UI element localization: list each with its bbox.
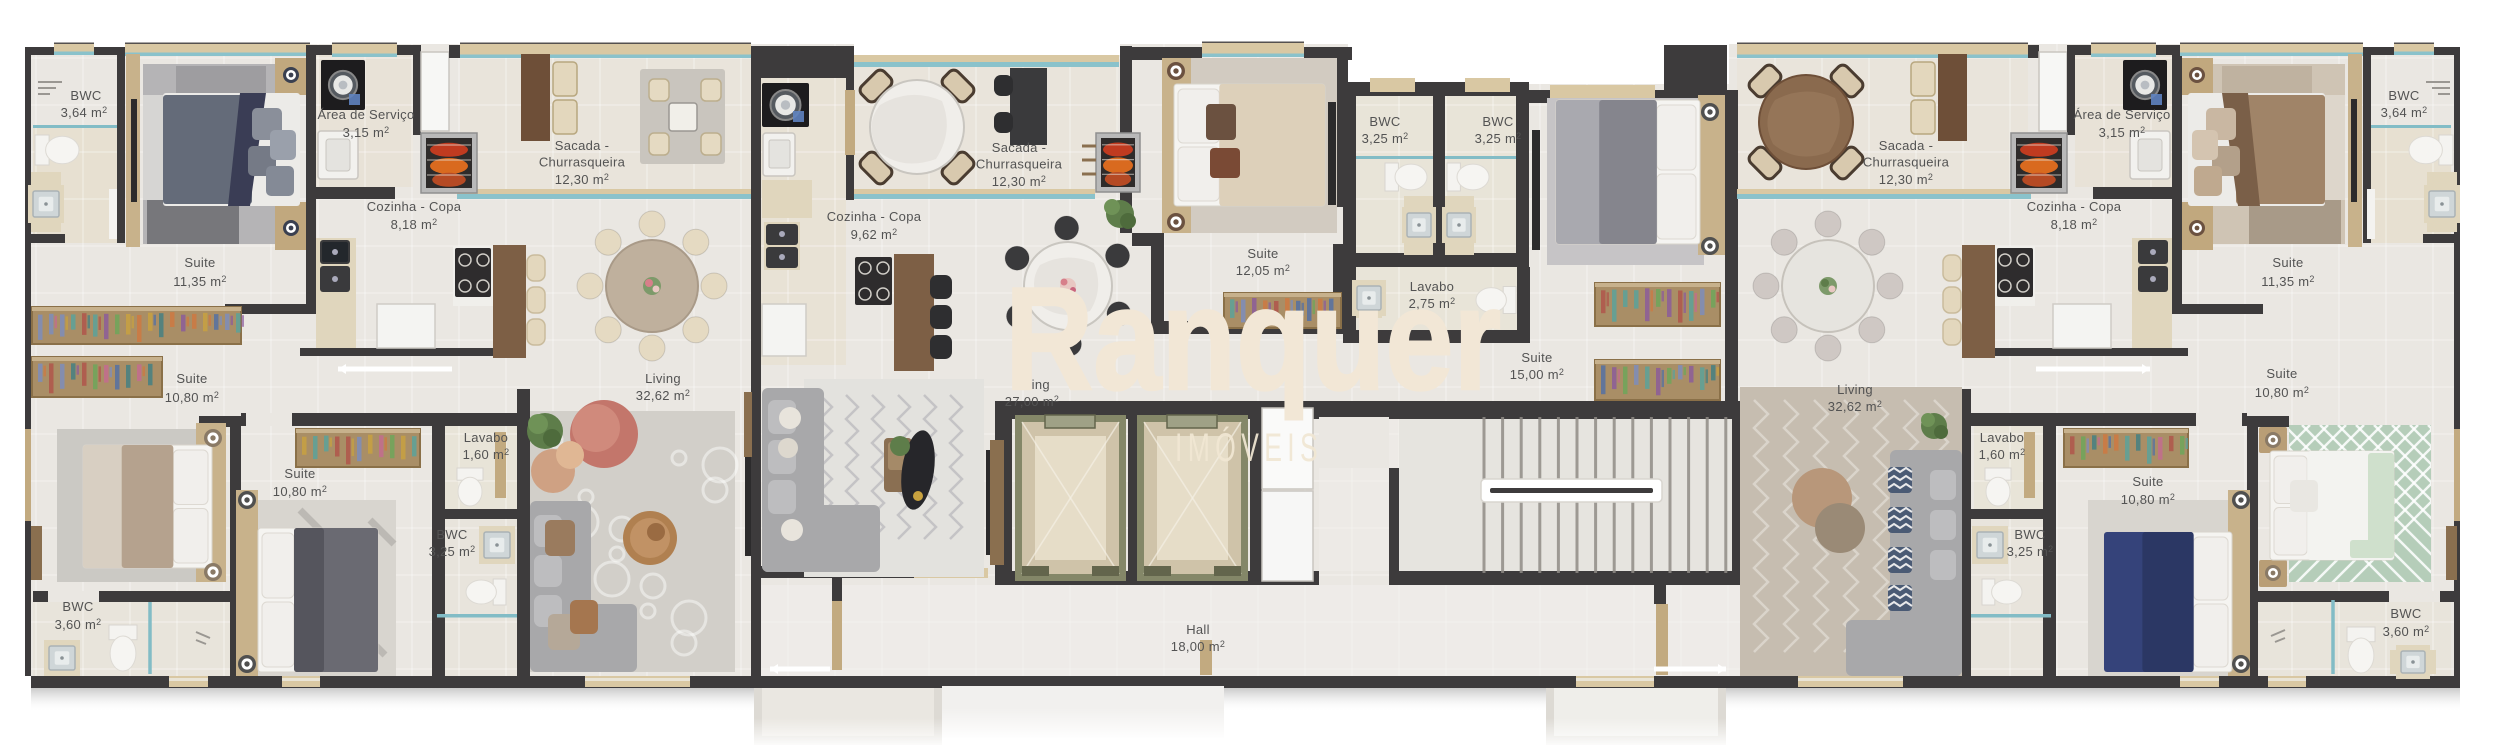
svg-text:3,60 m2: 3,60 m2 xyxy=(55,617,102,632)
svg-text:12,30 m2: 12,30 m2 xyxy=(555,172,609,187)
svg-text:11,35 m2: 11,35 m2 xyxy=(2261,274,2314,289)
svg-text:3,64 m2: 3,64 m2 xyxy=(61,105,108,120)
svg-text:Sacada -: Sacada - xyxy=(992,140,1046,155)
svg-text:Sacada -: Sacada - xyxy=(1879,138,1933,153)
svg-text:15,00 m2: 15,00 m2 xyxy=(1510,367,1564,382)
svg-text:BWC: BWC xyxy=(2388,88,2419,103)
svg-text:Área de Serviço: Área de Serviço xyxy=(318,107,415,122)
svg-text:Suite: Suite xyxy=(2272,255,2303,270)
svg-text:Suite: Suite xyxy=(176,371,207,386)
svg-text:BWC: BWC xyxy=(70,88,101,103)
svg-text:Lavabo: Lavabo xyxy=(464,430,508,445)
svg-text:BWC: BWC xyxy=(436,527,467,542)
svg-text:BWC: BWC xyxy=(2014,527,2045,542)
svg-text:Ranquer: Ranquer xyxy=(1005,257,1501,420)
svg-text:BWC: BWC xyxy=(62,599,93,614)
svg-text:32,62 m2: 32,62 m2 xyxy=(636,388,690,403)
svg-text:11,35 m2: 11,35 m2 xyxy=(173,274,226,289)
svg-text:Suite: Suite xyxy=(1521,350,1552,365)
svg-text:1,60 m2: 1,60 m2 xyxy=(463,447,510,462)
svg-text:Cozinha - Copa: Cozinha - Copa xyxy=(367,199,462,214)
svg-text:Sacada -: Sacada - xyxy=(555,138,609,153)
svg-text:3,64 m2: 3,64 m2 xyxy=(2381,105,2428,120)
svg-text:12,30 m2: 12,30 m2 xyxy=(992,174,1046,189)
svg-text:10,80 m2: 10,80 m2 xyxy=(2255,385,2309,400)
svg-text:Churrasqueira: Churrasqueira xyxy=(539,155,626,170)
svg-text:3,15 m2: 3,15 m2 xyxy=(343,125,390,140)
svg-text:3,25 m2: 3,25 m2 xyxy=(2007,544,2054,559)
svg-text:BWC: BWC xyxy=(1482,114,1513,129)
svg-text:18,00 m2: 18,00 m2 xyxy=(1171,639,1225,654)
svg-text:3,25 m2: 3,25 m2 xyxy=(429,544,476,559)
svg-text:3,25 m2: 3,25 m2 xyxy=(1475,131,1522,146)
svg-text:Cozinha - Copa: Cozinha - Copa xyxy=(827,209,922,224)
svg-text:Lavabo: Lavabo xyxy=(1980,430,2024,445)
svg-text:Área de Serviço: Área de Serviço xyxy=(2074,107,2171,122)
svg-text:1,60 m2: 1,60 m2 xyxy=(1979,447,2026,462)
svg-text:Suite: Suite xyxy=(184,255,215,270)
svg-text:Churrasqueira: Churrasqueira xyxy=(976,157,1063,172)
svg-text:Suite: Suite xyxy=(2132,474,2163,489)
svg-text:10,80 m2: 10,80 m2 xyxy=(2121,492,2175,507)
svg-text:Hall: Hall xyxy=(1186,622,1210,637)
svg-text:BWC: BWC xyxy=(1369,114,1400,129)
svg-text:Suite: Suite xyxy=(284,466,315,481)
svg-text:10,80 m2: 10,80 m2 xyxy=(273,484,327,499)
svg-text:Suite: Suite xyxy=(2266,366,2297,381)
svg-text:3,25 m2: 3,25 m2 xyxy=(1362,131,1409,146)
svg-text:3,15 m2: 3,15 m2 xyxy=(2099,125,2146,140)
svg-text:Living: Living xyxy=(645,371,681,386)
svg-text:BWC: BWC xyxy=(2390,606,2421,621)
svg-text:12,30 m2: 12,30 m2 xyxy=(1879,172,1933,187)
svg-text:9,62 m2: 9,62 m2 xyxy=(851,227,898,242)
svg-text:32,62 m2: 32,62 m2 xyxy=(1828,399,1882,414)
svg-text:IMÓVEIS: IMÓVEIS xyxy=(1175,425,1323,470)
svg-text:8,18 m2: 8,18 m2 xyxy=(391,217,438,232)
svg-text:10,80 m2: 10,80 m2 xyxy=(165,390,219,405)
svg-text:Living: Living xyxy=(1837,382,1873,397)
svg-text:Cozinha - Copa: Cozinha - Copa xyxy=(2027,199,2122,214)
svg-text:8,18 m2: 8,18 m2 xyxy=(2051,217,2098,232)
svg-text:Churrasqueira: Churrasqueira xyxy=(1863,155,1950,170)
svg-text:3,60 m2: 3,60 m2 xyxy=(2383,624,2430,639)
